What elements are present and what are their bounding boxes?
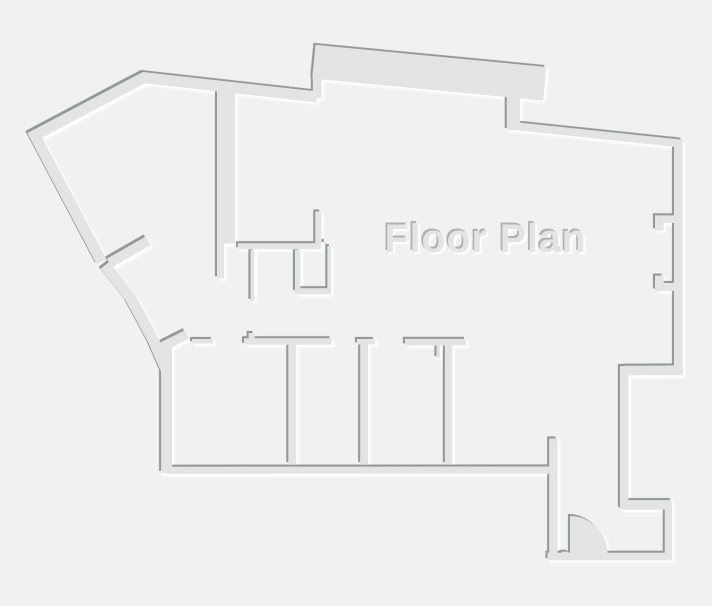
svg-text:Floor Plan: Floor Plan [385, 217, 587, 261]
